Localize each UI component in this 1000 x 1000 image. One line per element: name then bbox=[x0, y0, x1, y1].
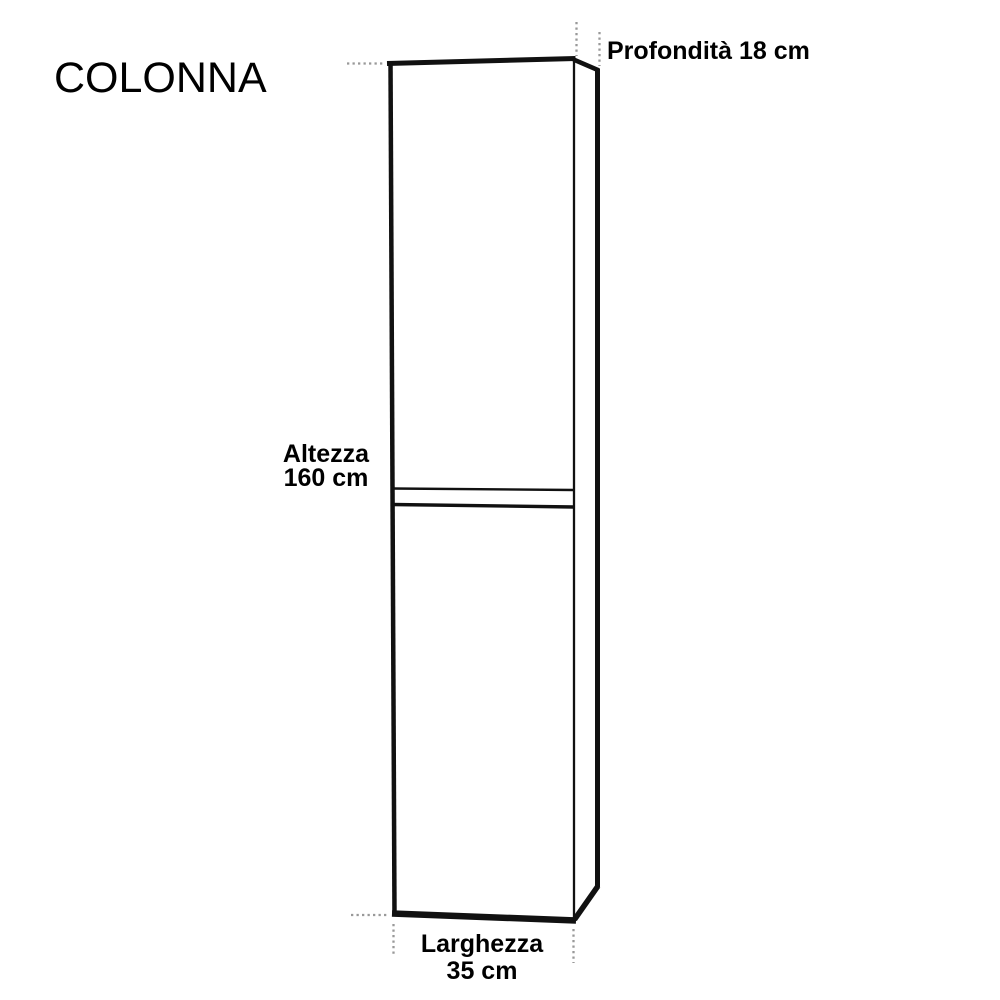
diagram-title: COLONNA bbox=[54, 54, 267, 103]
height-value-text: 160 cm bbox=[266, 466, 386, 490]
depth-value-text: 18 cm bbox=[739, 37, 810, 65]
depth-dimension-label: Profondità 18 cm bbox=[607, 37, 810, 66]
height-label-text: Altezza bbox=[266, 442, 386, 466]
width-value-text: 35 cm bbox=[407, 958, 557, 985]
diagram-canvas: COLONNA Profondità 18 cm Altezza 160 cm … bbox=[0, 0, 1000, 1000]
height-dimension-label: Altezza 160 cm bbox=[266, 442, 386, 490]
width-dimension-label: Larghezza 35 cm bbox=[407, 931, 557, 985]
width-label-text: Larghezza bbox=[407, 931, 557, 958]
cabinet-line-drawing bbox=[0, 0, 1000, 1000]
door-gap-upper-line bbox=[392, 489, 574, 491]
depth-label-text: Profondità bbox=[607, 37, 732, 65]
cabinet-side-face bbox=[574, 58, 598, 920]
